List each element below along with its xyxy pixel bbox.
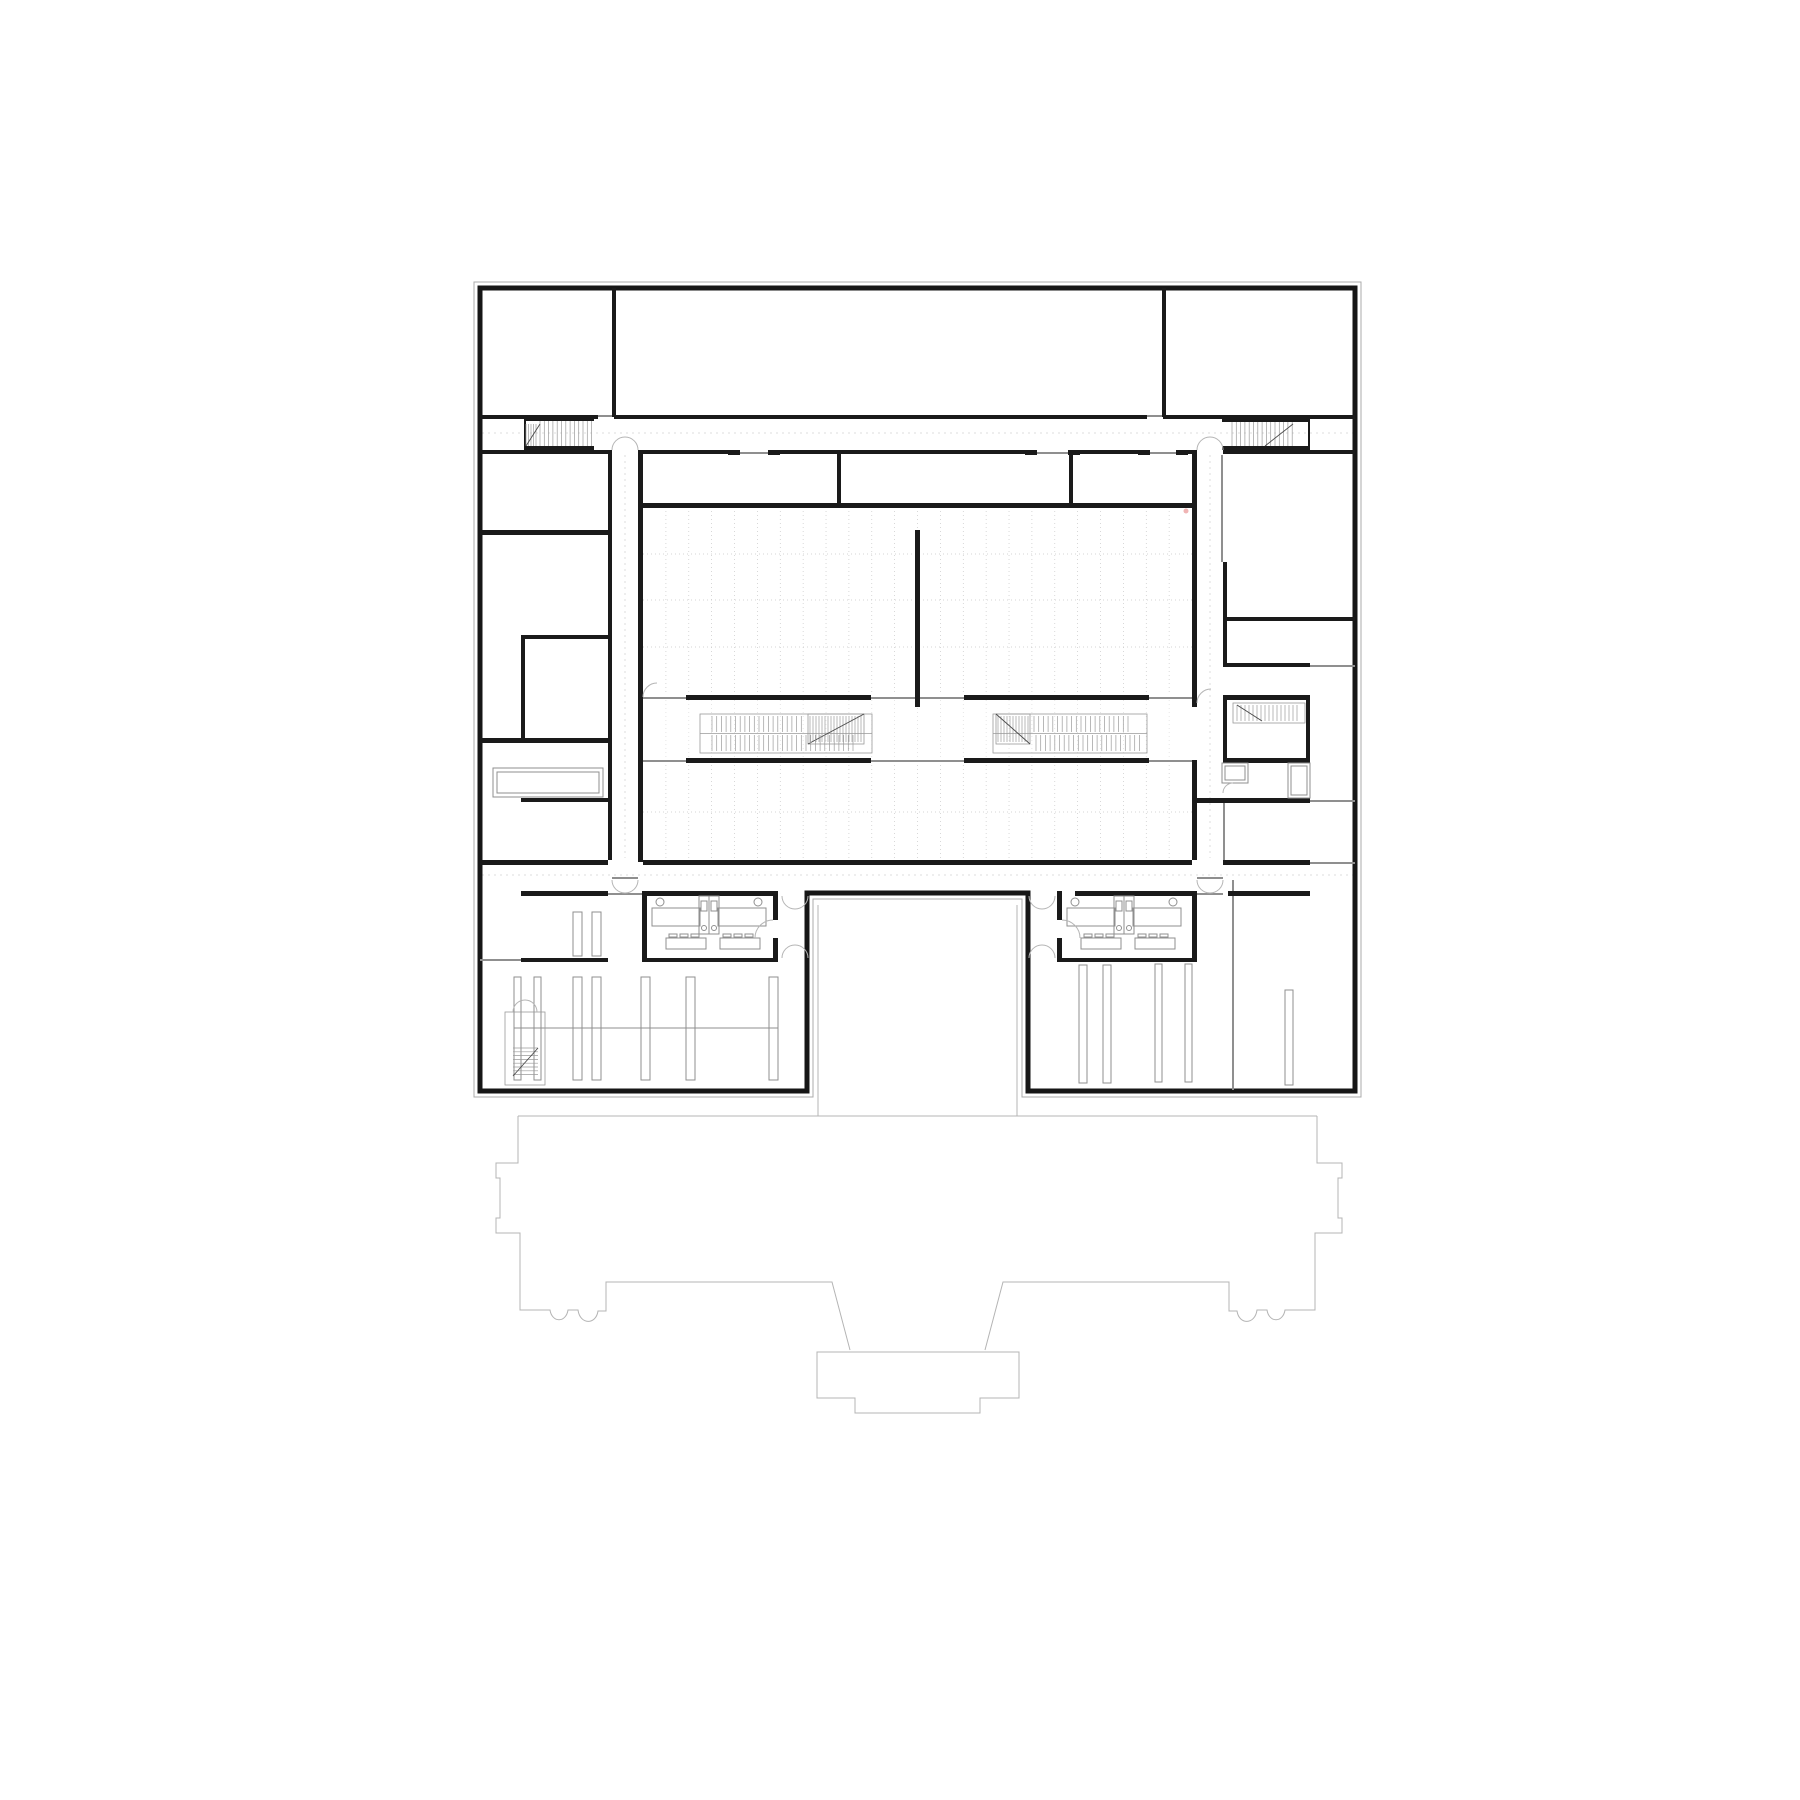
theater-footprint-outline	[496, 905, 1342, 1413]
marker-dot	[1184, 509, 1189, 514]
wc-fixtures-2	[1067, 896, 1181, 949]
floor-plan-drawing	[0, 0, 1800, 1800]
wc-fixtures-1	[652, 896, 766, 949]
interior-walls	[480, 288, 1355, 1078]
storage-partitions	[493, 763, 1310, 1085]
door-swings	[513, 437, 1233, 1012]
floor-plan-page	[0, 0, 1800, 1800]
